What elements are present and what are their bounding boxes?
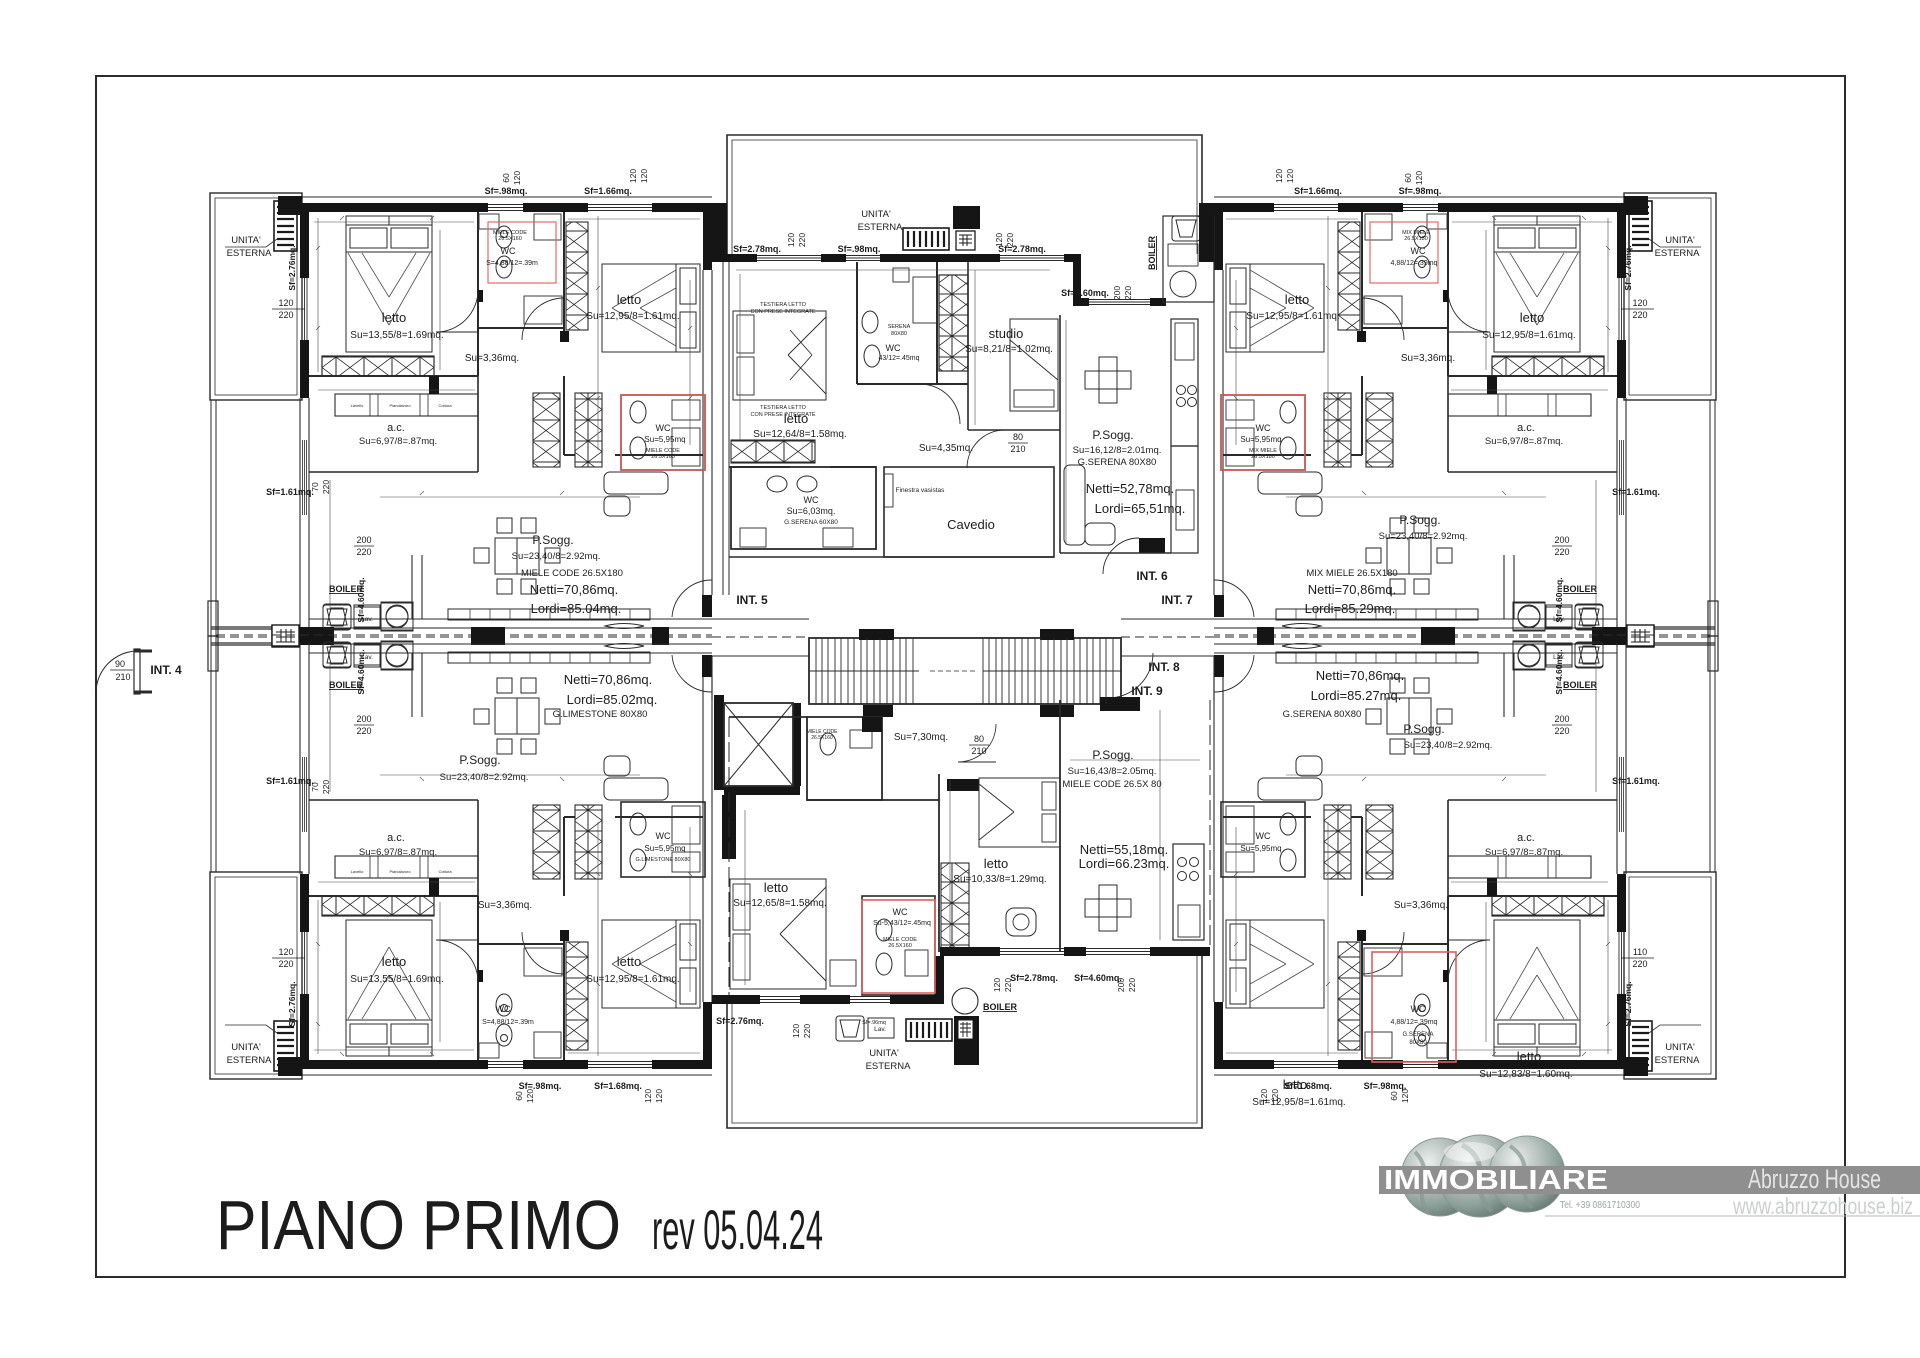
svg-text:Su=16,43/8=2.05mq.: Su=16,43/8=2.05mq. (1068, 766, 1157, 777)
svg-text:120: 120 (525, 1089, 535, 1103)
svg-text:Netti=70,86mq.: Netti=70,86mq. (1316, 668, 1405, 683)
svg-text:26.5X160: 26.5X160 (498, 236, 522, 242)
svg-text:Finestra vasistas: Finestra vasistas (896, 487, 946, 494)
svg-text:Lordi=85.29mq.: Lordi=85.29mq. (1305, 601, 1396, 616)
svg-text:ESTERNA: ESTERNA (1655, 248, 1701, 259)
svg-text:Su-5,43/12=.45mq: Su-5,43/12=.45mq (873, 920, 931, 927)
svg-text:Su=5,95mq: Su=5,95mq (644, 435, 685, 444)
svg-text:70: 70 (310, 782, 320, 792)
svg-text:220: 220 (1123, 286, 1133, 300)
svg-text:60: 60 (1389, 1091, 1399, 1101)
svg-text:ESTERNA: ESTERNA (858, 222, 904, 233)
svg-text:200: 200 (1112, 286, 1122, 300)
svg-text:Sf=1.66mq.: Sf=1.66mq. (584, 186, 632, 196)
svg-text:200: 200 (356, 535, 371, 545)
svg-text:www.abruzzohouse.biz: www.abruzzohouse.biz (1732, 1193, 1913, 1219)
svg-text:Su=3,36mq.: Su=3,36mq. (465, 353, 519, 364)
svg-text:letto: letto (1517, 1049, 1542, 1064)
svg-text:220: 220 (356, 726, 371, 736)
svg-text:200: 200 (1554, 714, 1569, 724)
svg-text:Sf=4.60mq.: Sf=4.60mq. (1074, 973, 1122, 983)
svg-text:Abruzzo House: Abruzzo House (1748, 1164, 1881, 1194)
svg-text:120: 120 (639, 169, 649, 183)
svg-text:P.Sogg.: P.Sogg. (1403, 722, 1444, 736)
svg-text:Su=23,40/8=2.92mq.: Su=23,40/8=2.92mq. (512, 551, 601, 562)
svg-text:Su=12,65/8=1.58mq.: Su=12,65/8=1.58mq. (733, 898, 826, 909)
svg-text:Su=12,95/8=1.61mq.: Su=12,95/8=1.61mq. (1482, 330, 1575, 341)
svg-text:26.5X180: 26.5X180 (1404, 236, 1428, 242)
svg-text:80X80: 80X80 (1409, 1040, 1427, 1046)
svg-text:Sf=1.61mq.: Sf=1.61mq. (266, 487, 314, 497)
svg-text:Pianolavoro: Pianolavoro (389, 403, 411, 408)
svg-text:60: 60 (501, 173, 511, 183)
svg-text:120: 120 (1400, 1089, 1410, 1103)
svg-text:G.LIMESTONE 80X80: G.LIMESTONE 80X80 (636, 857, 691, 863)
svg-text:210: 210 (115, 672, 130, 682)
svg-text:Su=23,40/8=2.92mq.: Su=23,40/8=2.92mq. (1379, 531, 1468, 542)
svg-text:220: 220 (1127, 978, 1137, 992)
svg-text:Netti=70,86mq.: Netti=70,86mq. (1308, 582, 1397, 597)
svg-text:Su=6,97/8=.87mq.: Su=6,97/8=.87mq. (359, 847, 437, 858)
svg-text:Su=5,95mq: Su=5,95mq (644, 844, 685, 853)
svg-text:Lavello: Lavello (351, 869, 364, 874)
svg-text:210: 210 (971, 746, 986, 756)
svg-text:Su=3,36mq.: Su=3,36mq. (1394, 900, 1448, 911)
svg-text:Sf=4.60mq.: Sf=4.60mq. (1554, 577, 1564, 622)
svg-text:Su=10,33/8=1.29mq.: Su=10,33/8=1.29mq. (953, 874, 1046, 885)
svg-text:Su=3,36mq.: Su=3,36mq. (1401, 353, 1455, 364)
svg-text:WC: WC (1411, 246, 1426, 256)
svg-text:G.SERENA 80X80: G.SERENA 80X80 (1283, 709, 1362, 720)
svg-text:Sf=2.78mq.: Sf=2.78mq. (733, 244, 781, 254)
svg-text:220: 220 (1632, 959, 1647, 969)
svg-text:WC: WC (1256, 831, 1271, 841)
svg-text:letto: letto (784, 411, 809, 426)
svg-text:Sf=4.60mq.: Sf=4.60mq. (1554, 649, 1564, 694)
svg-text:letto: letto (617, 954, 642, 969)
svg-text:UNITA': UNITA' (861, 209, 891, 220)
svg-text:120: 120 (1632, 298, 1647, 308)
svg-text:Su=6,97/8=.87mq.: Su=6,97/8=.87mq. (1485, 436, 1563, 447)
svg-text:INT. 4: INT. 4 (150, 663, 182, 677)
svg-text:Netti=70,86mq.: Netti=70,86mq. (564, 672, 653, 687)
svg-text:Su=5,95mq: Su=5,95mq (1240, 844, 1281, 853)
svg-text:INT. 7: INT. 7 (1161, 593, 1193, 607)
svg-text:Sf=4.60mq.: Sf=4.60mq. (356, 649, 366, 694)
svg-text:120: 120 (278, 298, 293, 308)
svg-text:G.SERENA 60X80: G.SERENA 60X80 (784, 519, 838, 526)
svg-text:G.SERENA: G.SERENA (1402, 1032, 1433, 1038)
svg-text:Sf=2.76mq.: Sf=2.76mq. (1623, 981, 1633, 1026)
svg-text:BOILER: BOILER (1563, 680, 1598, 690)
svg-text:Lordi=85.04mq.: Lordi=85.04mq. (531, 601, 622, 616)
svg-text:26.5X160: 26.5X160 (651, 454, 675, 460)
svg-text:INT. 8: INT. 8 (1148, 660, 1180, 674)
svg-text:120: 120 (994, 233, 1004, 247)
svg-text:Sf=4.60mq.: Sf=4.60mq. (1061, 288, 1109, 298)
svg-text:CON PRESE INTEGRATE: CON PRESE INTEGRATE (751, 309, 816, 315)
svg-text:60: 60 (1403, 173, 1413, 183)
svg-text:220: 220 (356, 547, 371, 557)
svg-text:letto: letto (764, 880, 789, 895)
svg-text:Cottura: Cottura (438, 869, 452, 874)
svg-text:BOILER: BOILER (1147, 236, 1157, 271)
svg-text:220: 220 (278, 959, 293, 969)
svg-text:120: 120 (628, 169, 638, 183)
svg-text:26.5X160: 26.5X160 (811, 735, 833, 741)
svg-text:Lavello: Lavello (351, 403, 364, 408)
svg-text:Su=12,95/8=1.61mq.: Su=12,95/8=1.61mq. (586, 974, 679, 985)
svg-text:220: 220 (1003, 978, 1013, 992)
svg-text:Su=13,55/8=1.69mq.: Su=13,55/8=1.69mq. (350, 330, 443, 341)
svg-text:Sf=2.76mq.: Sf=2.76mq. (1623, 245, 1633, 290)
svg-text:120: 120 (1414, 171, 1424, 185)
svg-text:Lordi=85.27mq.: Lordi=85.27mq. (1311, 688, 1402, 703)
svg-text:INT. 9: INT. 9 (1131, 684, 1163, 698)
svg-text:Sf=1.61mq.: Sf=1.61mq. (1612, 487, 1660, 497)
svg-text:4,88/12=.39mq: 4,88/12=.39mq (1391, 1019, 1438, 1026)
svg-text:ESTERNA: ESTERNA (866, 1061, 912, 1072)
svg-text:120: 120 (1270, 1089, 1280, 1103)
svg-text:UNITA': UNITA' (869, 1048, 899, 1059)
svg-text:Lordi=66.23mq.: Lordi=66.23mq. (1079, 856, 1170, 871)
svg-text:80: 80 (1013, 432, 1023, 442)
svg-text:120: 120 (1285, 169, 1295, 183)
svg-text:Sf=1.61mq.: Sf=1.61mq. (1612, 776, 1660, 786)
svg-text:rev 05.04.24: rev 05.04.24 (652, 1198, 823, 1261)
svg-text:WC: WC (656, 423, 671, 433)
svg-text:WC: WC (1256, 423, 1271, 433)
svg-text:220: 220 (797, 233, 807, 247)
svg-text:letto: letto (984, 856, 1009, 871)
svg-text:letto: letto (1520, 310, 1545, 325)
svg-text:WC: WC (886, 343, 901, 353)
svg-text:4,88/12=.39mq: 4,88/12=.39mq (1391, 260, 1438, 267)
svg-text:Su=6,03mq.: Su=6,03mq. (787, 506, 836, 516)
svg-text:Su=23,40/8=2.92mq.: Su=23,40/8=2.92mq. (440, 772, 529, 783)
svg-text:INT. 5: INT. 5 (736, 593, 768, 607)
svg-text:Netti=70,86mq.: Netti=70,86mq. (530, 582, 619, 597)
svg-text:90: 90 (115, 659, 125, 669)
svg-text:220: 220 (1554, 726, 1569, 736)
svg-text:P.Sogg.: P.Sogg. (1399, 513, 1440, 527)
svg-text:a.c.: a.c. (387, 422, 405, 434)
svg-text:200: 200 (1554, 535, 1569, 545)
svg-text:120: 120 (643, 1089, 653, 1103)
svg-text:120: 120 (512, 171, 522, 185)
svg-text:Sf=1.66mq.: Sf=1.66mq. (1294, 186, 1342, 196)
svg-text:letto: letto (617, 292, 642, 307)
svg-text:studio: studio (989, 326, 1024, 341)
svg-text:P.Sogg.: P.Sogg. (1092, 428, 1133, 442)
svg-text:Su=5,95mq: Su=5,95mq (1240, 435, 1281, 444)
svg-text:WC: WC (501, 246, 516, 256)
svg-text:Su=12,64/8=1.58mq.: Su=12,64/8=1.58mq. (753, 429, 846, 440)
svg-text:WC: WC (1411, 1004, 1426, 1014)
svg-text:Sf=2.76mq.: Sf=2.76mq. (287, 981, 297, 1026)
svg-text:P.Sogg.: P.Sogg. (459, 753, 500, 767)
svg-text:200: 200 (356, 714, 371, 724)
svg-text:26.5X160: 26.5X160 (888, 943, 912, 949)
svg-text:MIELE CODE 26.5X 80: MIELE CODE 26.5X 80 (1062, 779, 1161, 790)
svg-text:80: 80 (974, 734, 984, 744)
svg-text:letto: letto (1285, 292, 1310, 307)
svg-text:Netti=55,18mq.: Netti=55,18mq. (1080, 842, 1169, 857)
svg-text:UNITA': UNITA' (1665, 235, 1695, 246)
svg-text:120: 120 (992, 978, 1002, 992)
svg-text:43/12=.45mq: 43/12=.45mq (878, 355, 919, 362)
svg-text:60: 60 (514, 1091, 524, 1101)
svg-text:IMMOBILIARE: IMMOBILIARE (1384, 1164, 1608, 1195)
svg-text:S=4,88/12=.39m: S=4,88/12=.39m (482, 1019, 534, 1026)
svg-text:a.c.: a.c. (1517, 422, 1535, 434)
svg-text:G.LIMESTONE 80X80: G.LIMESTONE 80X80 (553, 709, 648, 720)
svg-text:Su=16,12/8=2.01mq.: Su=16,12/8=2.01mq. (1073, 445, 1162, 456)
svg-text:220: 220 (321, 480, 331, 494)
svg-text:Sf=.98mq.: Sf=.98mq. (838, 244, 881, 254)
svg-text:WC: WC (496, 1004, 511, 1014)
svg-text:Sf=4.60mq.: Sf=4.60mq. (356, 577, 366, 622)
svg-text:Netti=52,78mq.: Netti=52,78mq. (1086, 481, 1175, 496)
svg-text:Su=6,97/8=.87mq.: Su=6,97/8=.87mq. (359, 436, 437, 447)
svg-text:210: 210 (1010, 444, 1025, 454)
svg-text:220: 220 (1005, 233, 1015, 247)
svg-text:Pianolavoro: Pianolavoro (389, 869, 411, 874)
svg-text:ESTERNA: ESTERNA (1655, 1055, 1701, 1066)
svg-text:SERENA: SERENA (888, 324, 911, 330)
svg-text:BOILER: BOILER (983, 1002, 1018, 1012)
svg-text:BOILER: BOILER (1563, 584, 1598, 594)
svg-text:ESTERNA: ESTERNA (227, 248, 273, 259)
svg-text:Su=6,97/8=.87mq.: Su=6,97/8=.87mq. (1485, 847, 1563, 858)
svg-text:UNITA': UNITA' (1665, 1042, 1695, 1053)
svg-text:Su=7,30mq.: Su=7,30mq. (894, 732, 948, 743)
svg-text:Su=12,95/8=1.61mq.: Su=12,95/8=1.61mq. (586, 311, 679, 322)
svg-text:Sf=.98mq.: Sf=.98mq. (485, 186, 528, 196)
svg-text:Sf=2.76mq.: Sf=2.76mq. (716, 1016, 764, 1026)
svg-text:Sf=.96mq: Sf=.96mq (862, 1020, 886, 1026)
svg-text:Cottura: Cottura (438, 403, 452, 408)
svg-text:Cavedio: Cavedio (947, 517, 995, 532)
svg-text:UNITA': UNITA' (231, 235, 261, 246)
svg-text:MIELE CODE 26.5X180: MIELE CODE 26.5X180 (521, 568, 623, 579)
svg-text:120: 120 (786, 233, 796, 247)
svg-text:Tel. +39 0861710300: Tel. +39 0861710300 (1560, 1200, 1640, 1211)
svg-text:220: 220 (321, 780, 331, 794)
svg-text:200: 200 (1116, 978, 1126, 992)
svg-text:220: 220 (1554, 547, 1569, 557)
svg-text:ESTERNA: ESTERNA (227, 1055, 273, 1066)
svg-text:Su=8,21/8=1.02mq.: Su=8,21/8=1.02mq. (965, 344, 1053, 355)
svg-text:Su=12,95/8=1.61mq.: Su=12,95/8=1.61mq. (1246, 311, 1339, 322)
svg-text:120: 120 (1274, 169, 1284, 183)
svg-text:Su=23,40/8=2.92mq.: Su=23,40/8=2.92mq. (1404, 740, 1493, 751)
svg-text:INT. 6: INT. 6 (1136, 569, 1168, 583)
svg-text:Su=4,35mq.: Su=4,35mq. (919, 443, 973, 454)
svg-text:120: 120 (1259, 1089, 1269, 1103)
svg-text:110: 110 (1633, 947, 1647, 957)
svg-text:WC: WC (656, 831, 671, 841)
svg-text:WC: WC (893, 907, 908, 917)
svg-text:220: 220 (1632, 310, 1647, 320)
svg-text:220: 220 (802, 1024, 812, 1038)
svg-text:Sf=1.68mq.: Sf=1.68mq. (1284, 1081, 1332, 1091)
svg-text:a.c.: a.c. (387, 832, 405, 844)
svg-text:G.SERENA 80X80: G.SERENA 80X80 (1078, 457, 1157, 468)
svg-text:Su=13,55/8=1.69mq.: Su=13,55/8=1.69mq. (350, 974, 443, 985)
svg-text:Lav.: Lav. (874, 1026, 886, 1033)
svg-text:26.5X180: 26.5X180 (1251, 454, 1275, 460)
svg-text:120: 120 (791, 1024, 801, 1038)
svg-text:Su=12,83/8=1.60mq.: Su=12,83/8=1.60mq. (1479, 1069, 1572, 1080)
svg-text:TESTIERA LETTO: TESTIERA LETTO (760, 302, 806, 308)
svg-text:Sf=.98mq.: Sf=.98mq. (1399, 186, 1442, 196)
svg-text:Sf=1.68mq.: Sf=1.68mq. (594, 1081, 642, 1091)
svg-text:PIANO PRIMO: PIANO PRIMO (216, 1186, 621, 1264)
svg-text:80X80: 80X80 (891, 331, 907, 337)
svg-text:120: 120 (278, 947, 293, 957)
svg-text:letto: letto (382, 310, 407, 325)
svg-text:120: 120 (654, 1089, 664, 1103)
svg-text:Sf=2.78mq.: Sf=2.78mq. (1010, 973, 1058, 983)
svg-text:Sf=2.76mq.: Sf=2.76mq. (287, 245, 297, 290)
svg-text:UNITA': UNITA' (231, 1042, 261, 1053)
svg-text:a.c.: a.c. (1517, 832, 1535, 844)
svg-text:P.Sogg.: P.Sogg. (532, 533, 573, 547)
svg-text:70: 70 (310, 482, 320, 492)
svg-text:S=4,88/12=.39m: S=4,88/12=.39m (486, 260, 538, 267)
svg-text:220: 220 (278, 310, 293, 320)
svg-text:WC: WC (804, 495, 819, 505)
svg-text:Lordi=85.02mq.: Lordi=85.02mq. (567, 692, 658, 707)
svg-text:Lordi=65,51mq.: Lordi=65,51mq. (1095, 501, 1186, 516)
svg-text:P.Sogg.: P.Sogg. (1092, 748, 1133, 762)
svg-text:letto: letto (382, 954, 407, 969)
svg-text:MIX MIELE 26.5X180: MIX MIELE 26.5X180 (1306, 568, 1397, 579)
svg-text:Su=3,36mq.: Su=3,36mq. (478, 900, 532, 911)
svg-text:Sf=1.61mq.: Sf=1.61mq. (266, 776, 314, 786)
